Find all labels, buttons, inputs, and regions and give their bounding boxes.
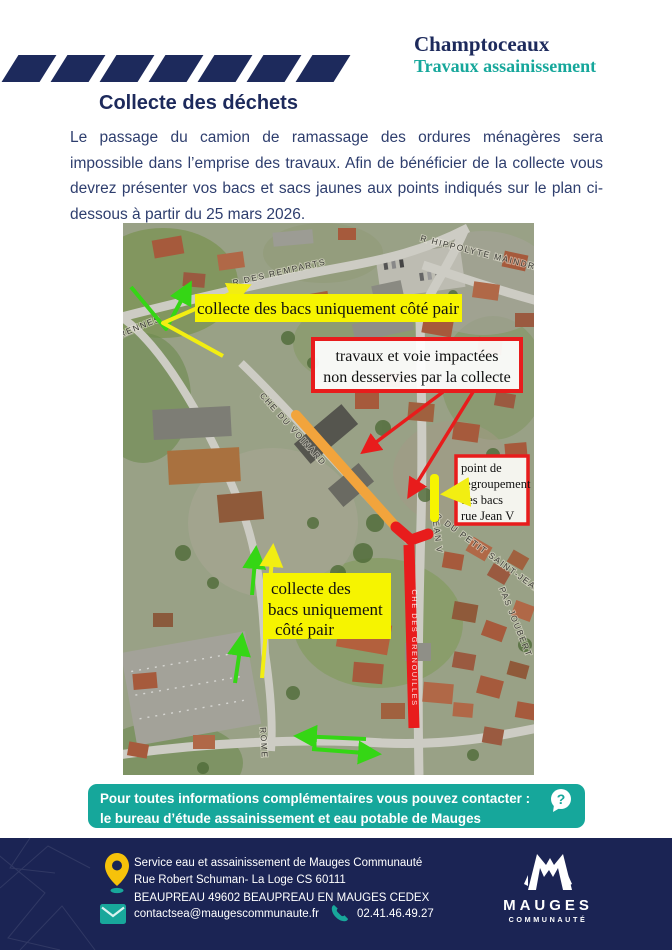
svg-text:collecte des bacs uniquement c: collecte des bacs uniquement côté pair: [197, 299, 459, 318]
label-works-impacted: travaux et voie impactées non desservies…: [313, 339, 521, 391]
street-label-rome: ROME: [258, 727, 270, 759]
contact-banner: Pour toutes informations complémentaires…: [88, 784, 585, 828]
logo-subtitle: COMMUNAUTÉ: [500, 915, 596, 924]
stripe-icon: [2, 55, 57, 82]
intro-paragraph: Le passage du camion de ramassage des or…: [70, 125, 603, 228]
svg-text:?: ?: [557, 791, 566, 807]
svg-text:bacs uniquement: bacs uniquement: [268, 600, 383, 619]
label-regroup-point: point de regroupement des bacs rue Jean …: [456, 456, 531, 524]
header-stripes-decoration: [10, 55, 353, 82]
location-pin-icon: [104, 852, 130, 894]
svg-text:collecte des: collecte des: [271, 579, 351, 598]
logo-title: MAUGES: [500, 897, 596, 914]
map-canvas: R DES REMPARTS R HIPPOLYTE MAINDRON RENN…: [123, 223, 534, 775]
phone-text: 02.41.46.49.27: [357, 908, 434, 920]
mauges-logo: MAUGES COMMUNAUTÉ: [500, 850, 596, 924]
street-label-grenouilles: CHE DES GRENOUILLES: [410, 589, 419, 706]
svg-text:non desservies par la collecte: non desservies par la collecte: [323, 369, 510, 386]
label-collect-bottom: collecte des bacs uniquement côté pair: [263, 573, 391, 639]
address-line1: Service eau et assainissement de Mauges …: [134, 855, 429, 872]
town-title: Champtoceaux: [414, 33, 596, 56]
address-line3: BEAUPREAU 49602 BEAUPREAU EN MAUGES CEDE…: [134, 890, 429, 907]
yellow-pointer-arrow: [445, 493, 457, 494]
stripe-icon: [149, 55, 204, 82]
footer: Service eau et assainissement de Mauges …: [0, 838, 672, 950]
question-bubble-icon: ?: [549, 788, 573, 814]
stripe-icon: [51, 55, 106, 82]
bin-regroup-point-marker: [430, 474, 439, 522]
stripe-icon: [247, 55, 302, 82]
address-block: Service eau et assainissement de Mauges …: [134, 855, 429, 907]
works-subtitle: Travaux assainissement: [414, 56, 596, 78]
satellite-map: R DES REMPARTS R HIPPOLYTE MAINDRON RENN…: [123, 223, 534, 775]
stripe-icon: [198, 55, 253, 82]
stripe-icon: [100, 55, 155, 82]
svg-text:des bacs: des bacs: [461, 493, 503, 507]
stripe-icon: [296, 55, 351, 82]
mauges-m-icon: [522, 850, 574, 890]
header-brand: Champtoceaux Travaux assainissement: [414, 33, 596, 78]
svg-text:rue Jean V: rue Jean V: [461, 509, 514, 523]
banner-line1: Pour toutes informations complémentaires…: [100, 789, 545, 809]
svg-text:côté pair: côté pair: [275, 620, 334, 639]
phone-icon: [330, 902, 350, 924]
email-text: contactsea@maugescommunaute.fr: [134, 908, 319, 920]
flyer-page: Champtoceaux Travaux assainissement Coll…: [0, 0, 672, 950]
page-title: Collecte des déchets: [99, 92, 298, 115]
svg-text:regroupement: regroupement: [461, 477, 531, 491]
address-line2: Rue Robert Schuman- La Loge CS 60111: [134, 872, 429, 889]
svg-text:point de: point de: [461, 461, 502, 475]
label-collect-top: collecte des bacs uniquement côté pair: [195, 294, 462, 322]
svg-text:travaux et voie impactées: travaux et voie impactées: [335, 348, 498, 365]
envelope-icon: [100, 904, 126, 924]
